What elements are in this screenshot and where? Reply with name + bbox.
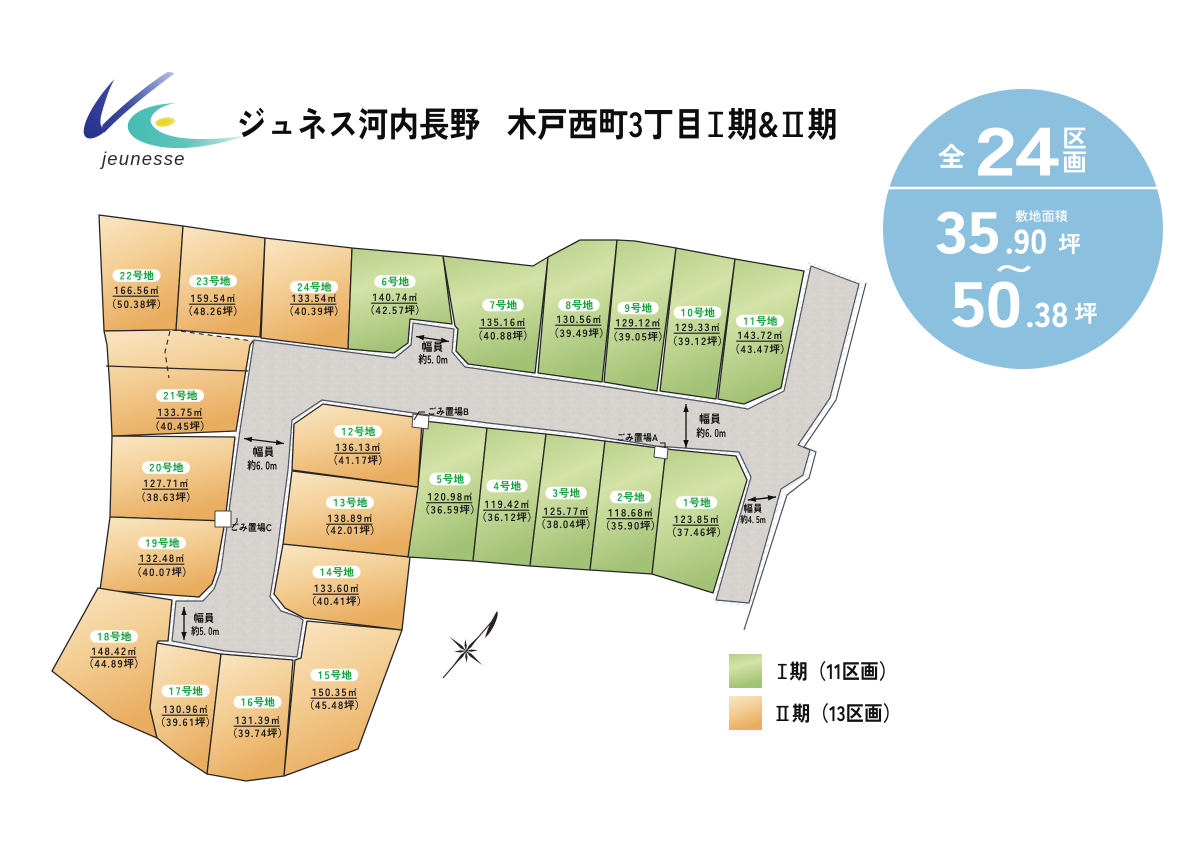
svg-text:jeunesse: jeunesse [99,148,186,169]
